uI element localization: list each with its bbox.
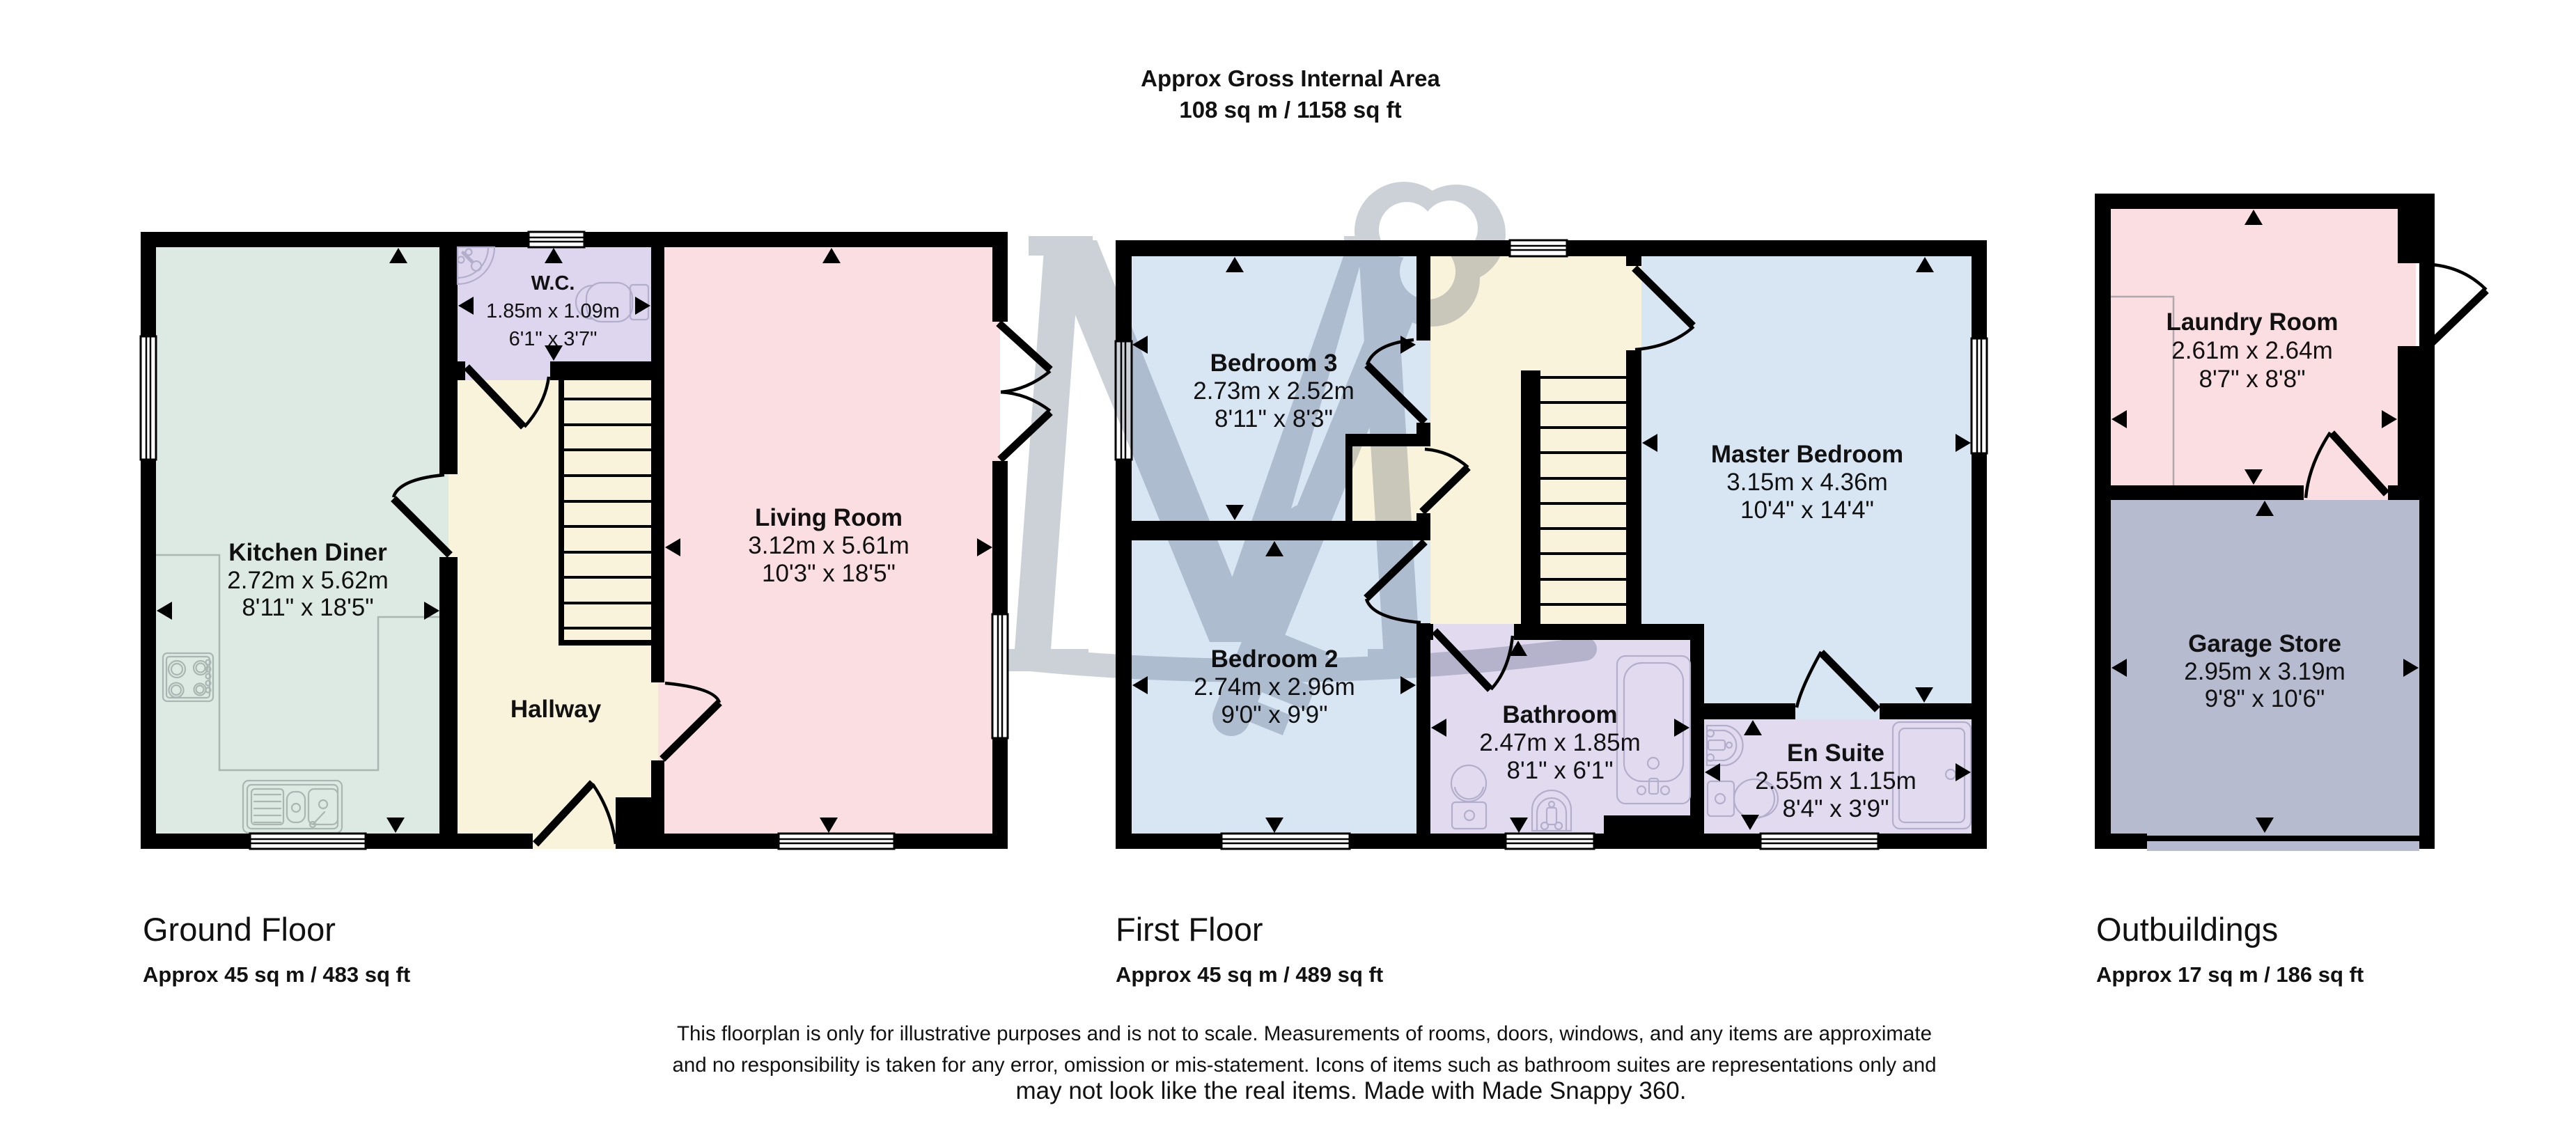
svg-text:Garage Store: Garage Store	[2188, 630, 2341, 657]
svg-text:Approx 17 sq m / 186 sq ft: Approx 17 sq m / 186 sq ft	[2096, 962, 2364, 987]
svg-text:Master Bedroom: Master Bedroom	[1711, 441, 1903, 468]
svg-text:Hallway: Hallway	[510, 696, 602, 723]
svg-text:1.85m x 1.09m: 1.85m x 1.09m	[486, 300, 620, 322]
svg-text:108 sq m / 1158 sq ft: 108 sq m / 1158 sq ft	[1179, 97, 1401, 123]
svg-text:Bathroom: Bathroom	[1502, 701, 1617, 728]
svg-text:10'4" x 14'4": 10'4" x 14'4"	[1740, 496, 1874, 524]
svg-text:Ground Floor: Ground Floor	[143, 911, 336, 948]
svg-text:2.73m x 2.52m: 2.73m x 2.52m	[1193, 377, 1355, 405]
svg-text:8'1" x 6'1": 8'1" x 6'1"	[1506, 757, 1613, 784]
svg-text:and no responsibility is taken: and no responsibility is taken for any e…	[672, 1054, 1936, 1077]
svg-text:2.61m x 2.64m: 2.61m x 2.64m	[2171, 337, 2333, 364]
svg-text:First Floor: First Floor	[1116, 911, 1263, 948]
svg-text:En Suite: En Suite	[1787, 740, 1884, 767]
svg-text:2.55m x 1.15m: 2.55m x 1.15m	[1755, 767, 1917, 795]
svg-text:Outbuildings: Outbuildings	[2096, 911, 2278, 948]
svg-text:Kitchen Diner: Kitchen Diner	[228, 539, 387, 566]
svg-text:10'3" x 18'5": 10'3" x 18'5"	[762, 560, 896, 587]
svg-text:Approx 45 sq m / 489 sq ft: Approx 45 sq m / 489 sq ft	[1116, 962, 1383, 987]
svg-text:Approx 45 sq m / 483 sq ft: Approx 45 sq m / 483 sq ft	[143, 962, 410, 987]
svg-text:8'7" x 8'8": 8'7" x 8'8"	[2199, 366, 2305, 393]
svg-text:2.47m x 1.85m: 2.47m x 1.85m	[1479, 729, 1641, 756]
svg-text:Laundry Room: Laundry Room	[2167, 308, 2339, 336]
svg-text:This floorplan is only for ill: This floorplan is only for illustrative …	[677, 1022, 1932, 1045]
svg-text:9'8" x 10'6": 9'8" x 10'6"	[2205, 685, 2325, 712]
svg-text:may not look like the real ite: may not look like the real items. Made w…	[1016, 1077, 1687, 1104]
svg-text:Approx Gross Internal Area: Approx Gross Internal Area	[1141, 65, 1440, 91]
svg-text:3.15m x 4.36m: 3.15m x 4.36m	[1726, 469, 1888, 496]
svg-text:W.C.: W.C.	[531, 272, 575, 295]
svg-text:2.95m x 3.19m: 2.95m x 3.19m	[2184, 658, 2345, 685]
svg-text:8'4" x 3'9": 8'4" x 3'9"	[1782, 795, 1889, 822]
svg-text:2.72m x 5.62m: 2.72m x 5.62m	[227, 567, 389, 594]
svg-text:Living Room: Living Room	[755, 504, 903, 531]
svg-text:3.12m x 5.61m: 3.12m x 5.61m	[748, 532, 910, 559]
svg-text:8'11" x 18'5": 8'11" x 18'5"	[242, 594, 373, 621]
